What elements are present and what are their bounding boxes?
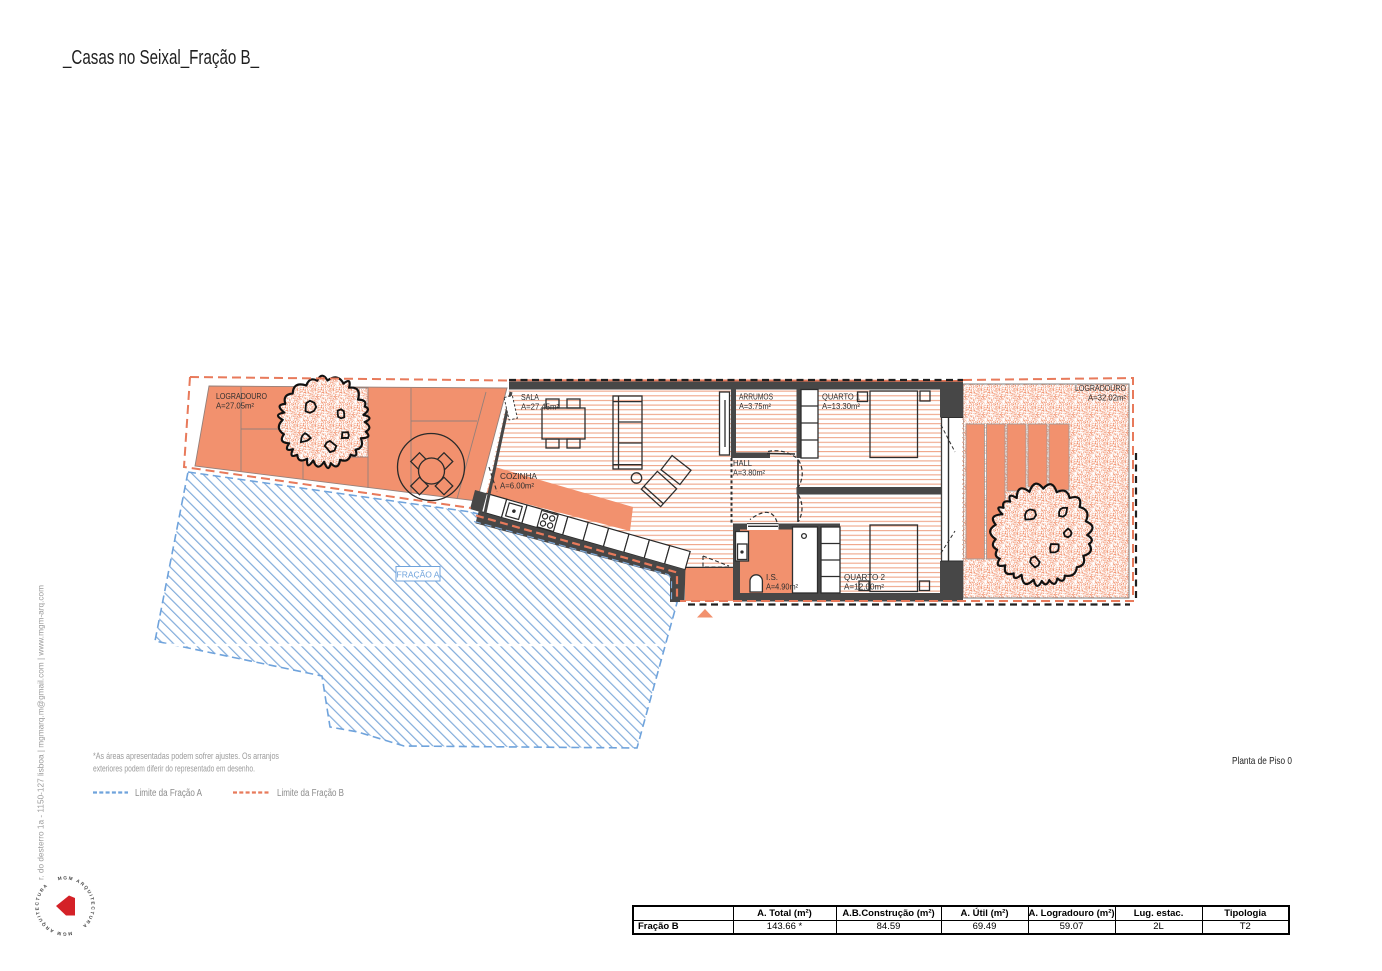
svg-text:A=12.00m²: A=12.00m² [844,583,884,592]
svg-text:A=4.90m²: A=4.90m² [766,583,798,592]
svg-text:LOGRADOURO: LOGRADOURO [1075,384,1126,393]
svg-text:SALA: SALA [521,393,540,402]
svg-text:FRAÇÃO A: FRAÇÃO A [397,570,440,580]
svg-text:I.S.: I.S. [766,573,778,582]
svg-text:*As áreas apresentadas podem s: *As áreas apresentadas podem sofrer ajus… [93,751,279,761]
svg-text:HALL: HALL [733,459,753,468]
svg-text:ARRUMOS: ARRUMOS [739,393,773,402]
svg-text:exteriores podem diferir do re: exteriores podem diferir do representado… [93,764,255,774]
svg-text:Planta de Piso 0: Planta de Piso 0 [1232,755,1292,767]
svg-text:r. do desterro 1a - 1150-127 l: r. do desterro 1a - 1150-127 lisboa | mg… [36,585,46,880]
svg-text:QUARTO 2: QUARTO 2 [844,573,886,582]
svg-text:COZINHA: COZINHA [500,472,538,481]
svg-text:A=27.45m²: A=27.45m² [521,403,559,412]
svg-text:A=13.30m²: A=13.30m² [822,402,860,411]
svg-text:A=27.05m²: A=27.05m² [216,402,254,411]
svg-text:Limite da Fração A: Limite da Fração A [135,788,202,799]
svg-text:A=3.75m²: A=3.75m² [739,402,771,411]
svg-text:Limite da Fração B: Limite da Fração B [277,788,344,799]
svg-text:QUARTO 1: QUARTO 1 [822,393,861,402]
svg-text:A=3.80m²: A=3.80m² [733,469,765,478]
svg-text:A=32.02m²: A=32.02m² [1088,394,1126,403]
svg-text:A=6.00m²: A=6.00m² [500,482,534,491]
svg-text:_Casas no Seixal_Fração B_: _Casas no Seixal_Fração B_ [62,47,259,69]
svg-text:LOGRADOURO: LOGRADOURO [216,392,267,401]
